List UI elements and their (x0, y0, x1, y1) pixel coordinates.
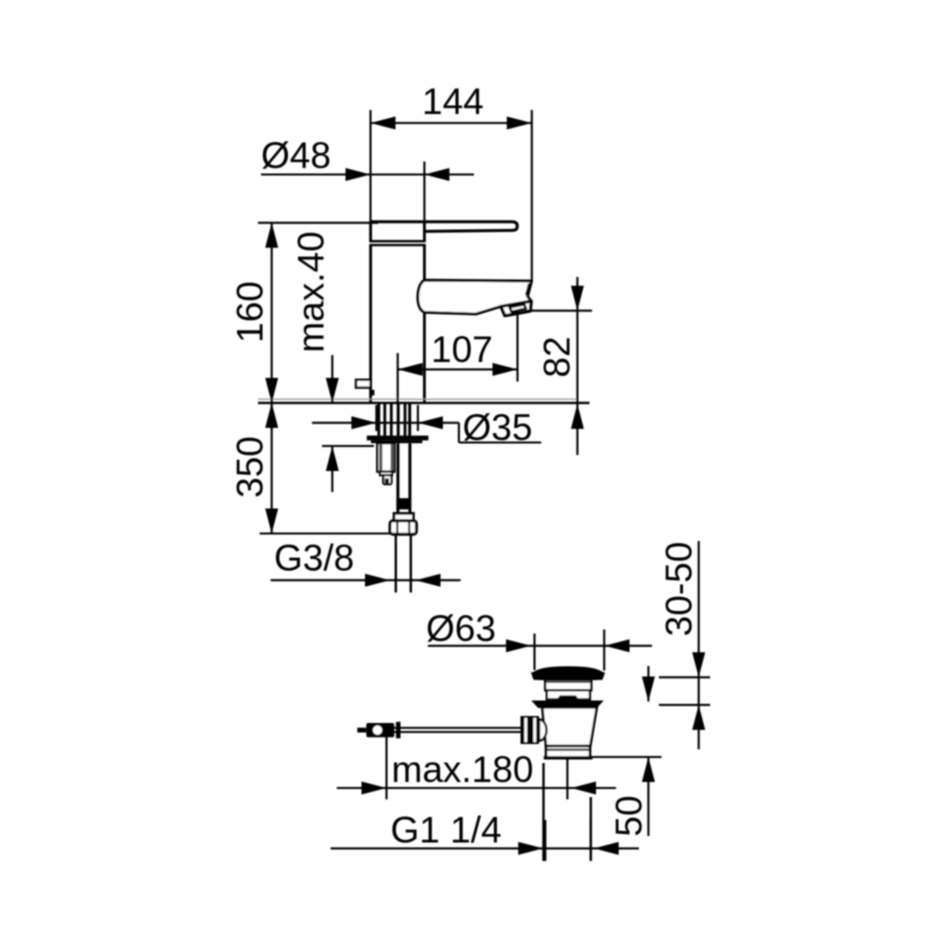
svg-text:107: 107 (431, 329, 493, 370)
svg-text:Ø63: Ø63 (426, 608, 496, 649)
svg-text:50: 50 (609, 795, 650, 836)
svg-text:30-50: 30-50 (659, 542, 700, 637)
svg-text:G1 1/4: G1 1/4 (391, 810, 502, 851)
svg-text:max.180: max.180 (392, 749, 534, 790)
svg-text:350: 350 (230, 436, 271, 498)
svg-text:82: 82 (537, 336, 578, 377)
svg-text:G3/8: G3/8 (274, 538, 354, 579)
svg-text:160: 160 (230, 281, 271, 343)
svg-text:Ø48: Ø48 (261, 135, 331, 176)
svg-text:max.40: max.40 (291, 231, 332, 352)
svg-text:144: 144 (422, 81, 484, 122)
